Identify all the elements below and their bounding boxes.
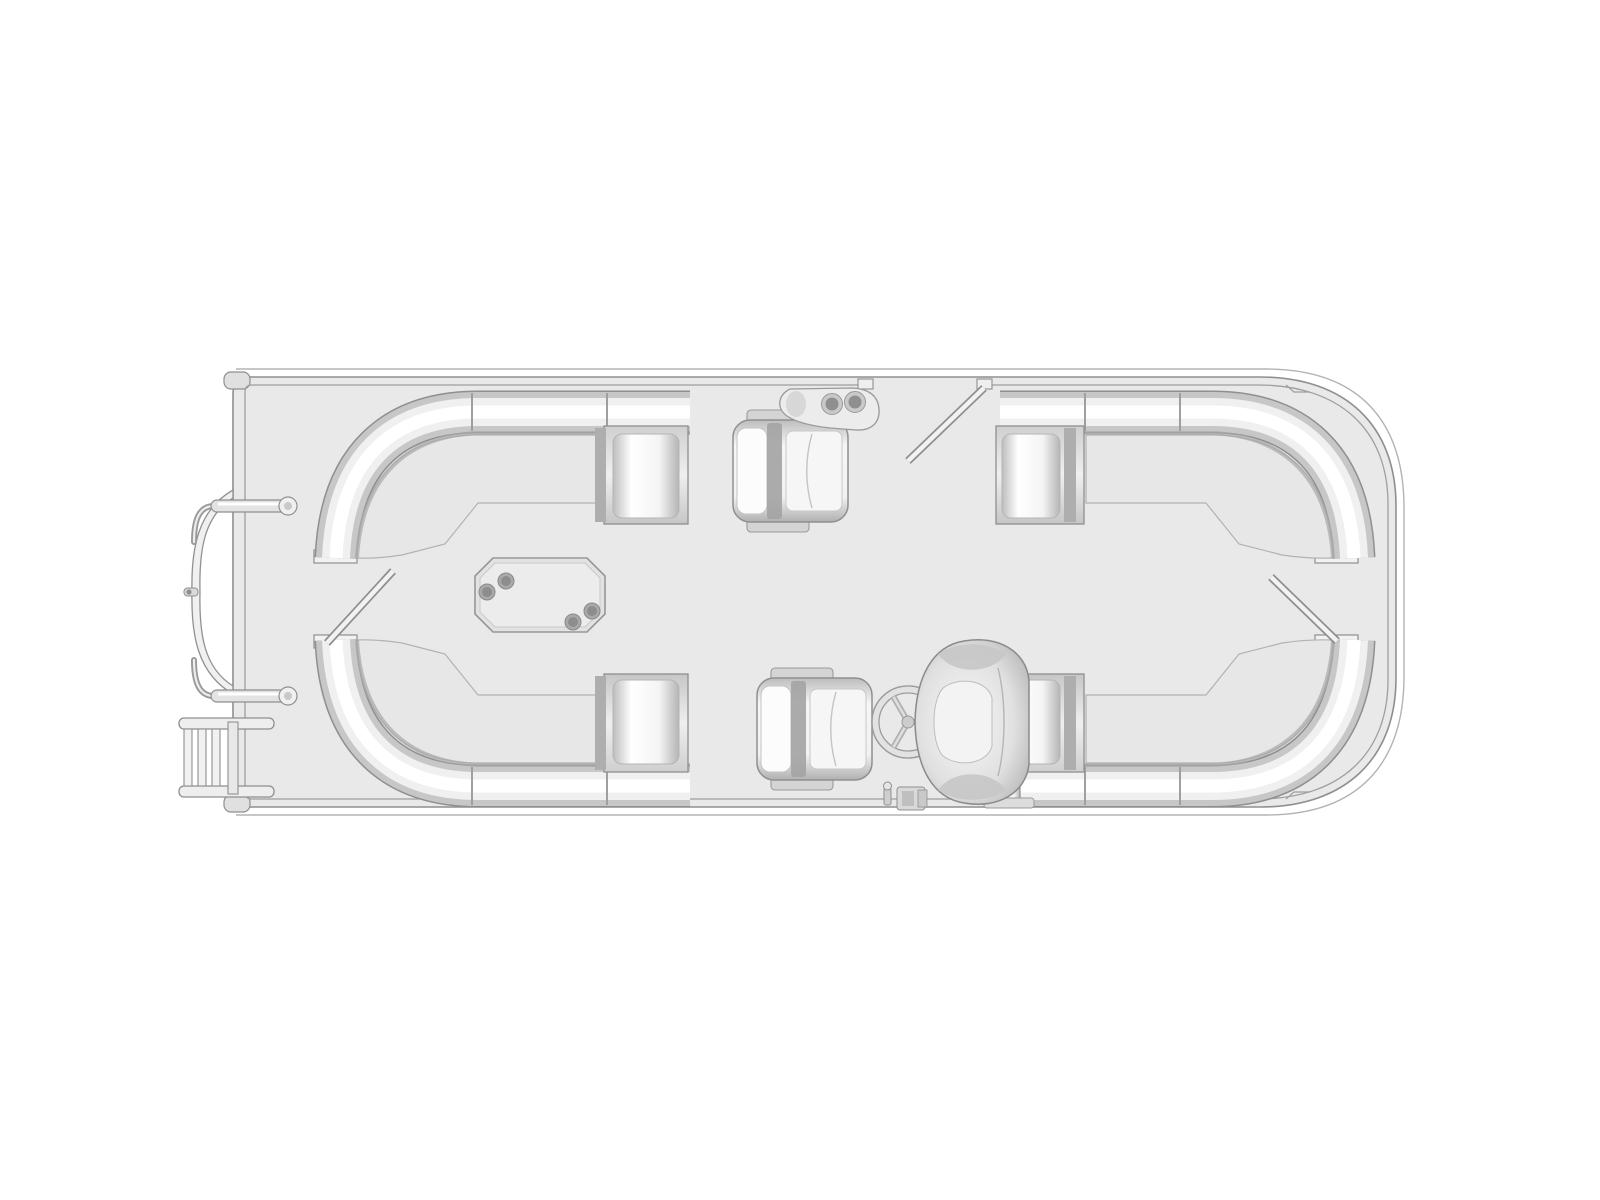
throttle-lever: [884, 788, 891, 805]
grab-handle-bar: [211, 500, 290, 512]
table-cupholder: [479, 584, 495, 600]
pontoon-floorplan-drawing: [0, 0, 1600, 1200]
lounge-armrest-divider: [595, 428, 606, 522]
captains-chair: [915, 640, 1034, 808]
recliner-chair-bottom: [757, 668, 872, 790]
chair-seat-cushion: [934, 681, 992, 763]
table-cupholder: [584, 603, 600, 619]
ladder-rail-bottom: [179, 786, 274, 797]
grab-handle-bar: [211, 690, 290, 702]
ladder-stile: [228, 722, 238, 794]
wheel-hub-center: [902, 716, 914, 728]
grab-handle-end-dot: [284, 692, 292, 700]
cocktail-table: [475, 558, 605, 632]
lounge-armrest-cushion: [1002, 434, 1060, 518]
control-side-tab: [918, 790, 927, 807]
console-cupholder: [822, 394, 843, 415]
ladder-rung: [212, 729, 220, 786]
pontoon-floorplan-page: [0, 0, 1600, 1200]
lounge-armrest-cushion: [613, 434, 679, 518]
control-box-inset: [902, 791, 914, 806]
grab-handle-end-dot: [284, 502, 292, 510]
gate-jamb: [858, 379, 873, 389]
ladder-rail-top: [179, 718, 274, 729]
table-cupholder: [565, 614, 581, 630]
table-cupholder: [498, 573, 514, 589]
grab-handle-top: [211, 497, 297, 515]
grab-handle-bottom: [211, 687, 297, 705]
throttle-knob: [884, 782, 892, 790]
table-top-inner: [480, 563, 600, 627]
recliner-headrest-pillow: [737, 428, 767, 514]
console-cupholder: [845, 392, 866, 413]
lounge-armrest-divider: [1064, 428, 1076, 522]
bow-gate-latch-pin: [186, 589, 191, 594]
ladder-rung: [184, 729, 192, 786]
ladder-rung: [198, 729, 206, 786]
recliner-seat-cushion: [786, 431, 842, 511]
recliner-fold-band: [767, 423, 782, 519]
console-shade: [786, 391, 806, 417]
